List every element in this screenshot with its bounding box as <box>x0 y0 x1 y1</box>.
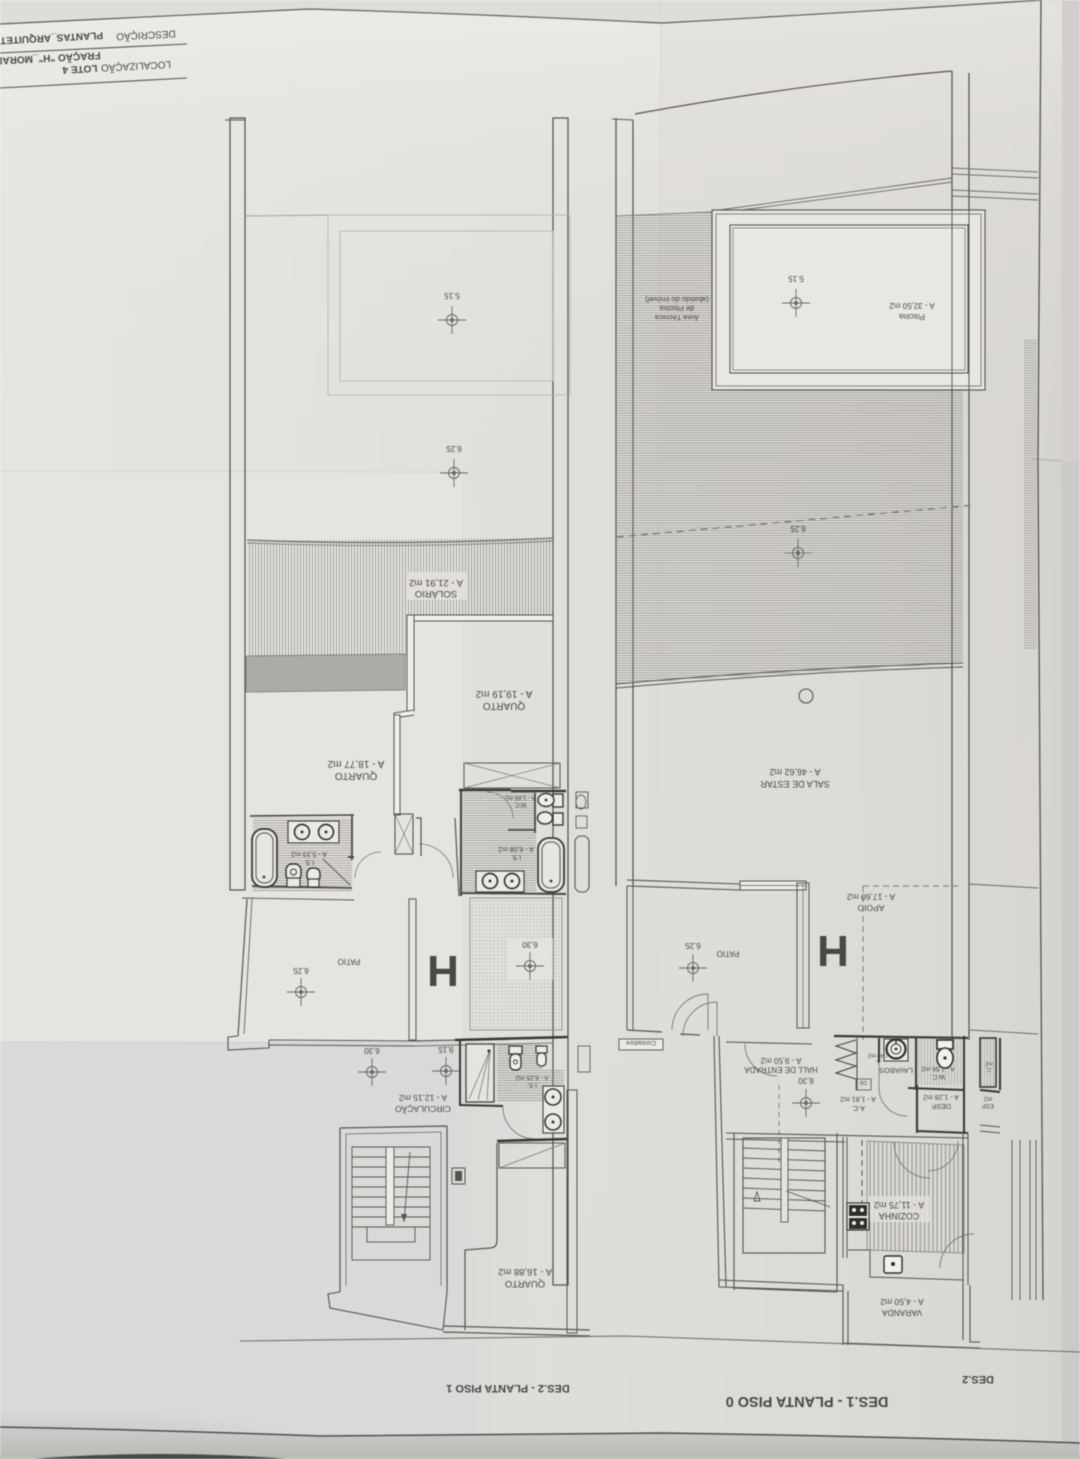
svg-text:A - 46,62 m2: A - 46,62 m2 <box>769 767 820 777</box>
svg-text:LOTE 4: LOTE 4 <box>62 62 98 75</box>
svg-text:Contadore: Contadore <box>625 1039 656 1046</box>
svg-text:A - 1,28 m2: A - 1,28 m2 <box>923 1093 959 1100</box>
svg-text:6.25: 6.25 <box>790 524 806 533</box>
svg-text:A - 1,81 m2: A - 1,81 m2 <box>840 1095 876 1102</box>
svg-text:A.C.: A.C. <box>851 1104 865 1111</box>
svg-text:I.S.: I.S. <box>527 1081 537 1088</box>
svg-text:DES.2 - PLANTA PISO 1: DES.2 - PLANTA PISO 1 <box>446 1382 569 1394</box>
svg-text:m2: m2 <box>983 1095 992 1101</box>
svg-text:CIRCULAÇÃO: CIRCULAÇÃO <box>395 1104 451 1114</box>
svg-text:APOIO: APOIO <box>857 903 884 913</box>
svg-text:QUARTO: QUARTO <box>505 1278 545 1289</box>
svg-text:ESP: ESP <box>982 1102 994 1108</box>
svg-text:A - 32,50 m2: A - 32,50 m2 <box>889 301 935 310</box>
svg-text:A - 19,19 m2: A - 19,19 m2 <box>475 688 532 699</box>
svg-text:H: H <box>427 946 459 995</box>
svg-text:6,30: 6,30 <box>798 1076 814 1085</box>
svg-text:A - 17,60 m2: A - 17,60 m2 <box>847 892 895 902</box>
svg-text:9,15: 9,15 <box>438 1045 454 1054</box>
svg-text:(abatido do imóvel): (abatido do imóvel) <box>645 295 709 304</box>
svg-text:COZINHA: COZINHA <box>879 1211 920 1221</box>
svg-text:HALL DE ENTRADA: HALL DE ENTRADA <box>744 1065 818 1074</box>
svg-text:A - 21,91 m2: A - 21,91 m2 <box>409 577 463 588</box>
svg-text:6,30: 6,30 <box>522 940 538 949</box>
svg-text:SALA DE ESTAR: SALA DE ESTAR <box>760 779 830 789</box>
svg-text:Piscina: Piscina <box>899 312 925 321</box>
svg-text:A - 12,15 m2: A - 12,15 m2 <box>399 1093 447 1103</box>
svg-text:SOLÁRIO: SOLÁRIO <box>415 588 457 599</box>
svg-text:QUARTO: QUARTO <box>335 770 378 781</box>
svg-text:H: H <box>817 926 849 975</box>
svg-text:QUARTO: QUARTO <box>483 700 526 711</box>
svg-text:A - 11,75 m2: A - 11,75 m2 <box>874 1200 924 1210</box>
svg-text:A - 4,50 m2: A - 4,50 m2 <box>880 1297 924 1307</box>
svg-text:A - 1,56 m2: A - 1,56 m2 <box>921 1065 955 1072</box>
svg-text:m2: m2 <box>985 1060 993 1066</box>
svg-text:A - 1,89 m2: A - 1,89 m2 <box>504 794 535 800</box>
svg-text:DES.1 - PLANTA PISO 0: DES.1 - PLANTA PISO 0 <box>726 1393 889 1409</box>
svg-text:DE: DE <box>859 1079 867 1085</box>
svg-text:6.25: 6.25 <box>293 966 309 975</box>
svg-text:LAVABOS: LAVABOS <box>879 1066 913 1075</box>
svg-text:DESP.: DESP. <box>931 1102 951 1109</box>
svg-text:6.25: 6.25 <box>446 444 462 453</box>
svg-text:5.15: 5.15 <box>788 274 804 283</box>
svg-text:W.C.: W.C. <box>931 1073 945 1080</box>
svg-text:I.S.: I.S. <box>511 853 522 860</box>
svg-text:6,30: 6,30 <box>364 1046 380 1055</box>
svg-text:I.S.: I.S. <box>304 858 315 865</box>
svg-text:PATIO: PATIO <box>717 949 740 958</box>
svg-text:W.C.: W.C. <box>513 801 526 807</box>
svg-text:A - 9,50 m2: A - 9,50 m2 <box>760 1056 801 1065</box>
svg-text:DES.2: DES.2 <box>962 1373 994 1385</box>
svg-text:de Piscina: de Piscina <box>659 304 694 313</box>
svg-text:5.15: 5.15 <box>444 291 460 300</box>
svg-text:A - 6,25 m2: A - 6,25 m2 <box>515 1074 549 1081</box>
svg-text:VARANDA: VARANDA <box>881 1308 922 1318</box>
svg-text:PATIO: PATIO <box>338 957 361 966</box>
svg-text:A - 6,08 m2: A - 6,08 m2 <box>498 845 534 852</box>
svg-text:A - 5,33 m2: A - 5,33 m2 <box>291 850 327 857</box>
svg-text:6.25: 6.25 <box>685 941 701 950</box>
svg-text:A - 16,88 m2: A - 16,88 m2 <box>498 1266 552 1277</box>
svg-text:A - 18,77 m2: A - 18,77 m2 <box>327 758 384 769</box>
svg-text:Área Técnica: Área Técnica <box>654 313 699 322</box>
